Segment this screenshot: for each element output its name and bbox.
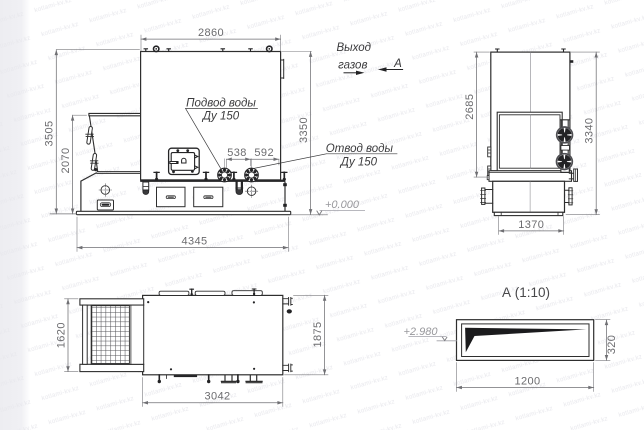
svg-text:газов: газов [338,60,367,72]
svg-text:1370: 1370 [518,219,544,231]
svg-text:2860: 2860 [198,27,224,39]
svg-text:Подвод воды: Подвод воды [186,98,256,110]
svg-text:3340: 3340 [584,118,596,144]
svg-text:А: А [393,58,402,70]
svg-text:2685: 2685 [464,94,476,120]
svg-text:1875: 1875 [312,321,324,347]
svg-text:592: 592 [254,147,274,159]
svg-text:Ду 150: Ду 150 [201,110,240,122]
svg-text:1200: 1200 [514,376,540,388]
svg-text:320: 320 [606,335,618,355]
svg-text:Выход: Выход [336,42,371,54]
svg-text:538: 538 [227,147,247,159]
svg-text:Отвод воды: Отвод воды [326,143,394,155]
svg-text:2070: 2070 [60,147,72,173]
svg-text:+0.000: +0.000 [325,199,360,211]
svg-text:3350: 3350 [298,117,310,143]
svg-text:4345: 4345 [181,236,207,248]
svg-text:3505: 3505 [44,120,56,146]
svg-text:А (1:10): А (1:10) [502,285,550,300]
svg-text:3042: 3042 [204,391,230,403]
svg-text:Ду 150: Ду 150 [339,156,378,168]
svg-text:1620: 1620 [55,322,67,348]
